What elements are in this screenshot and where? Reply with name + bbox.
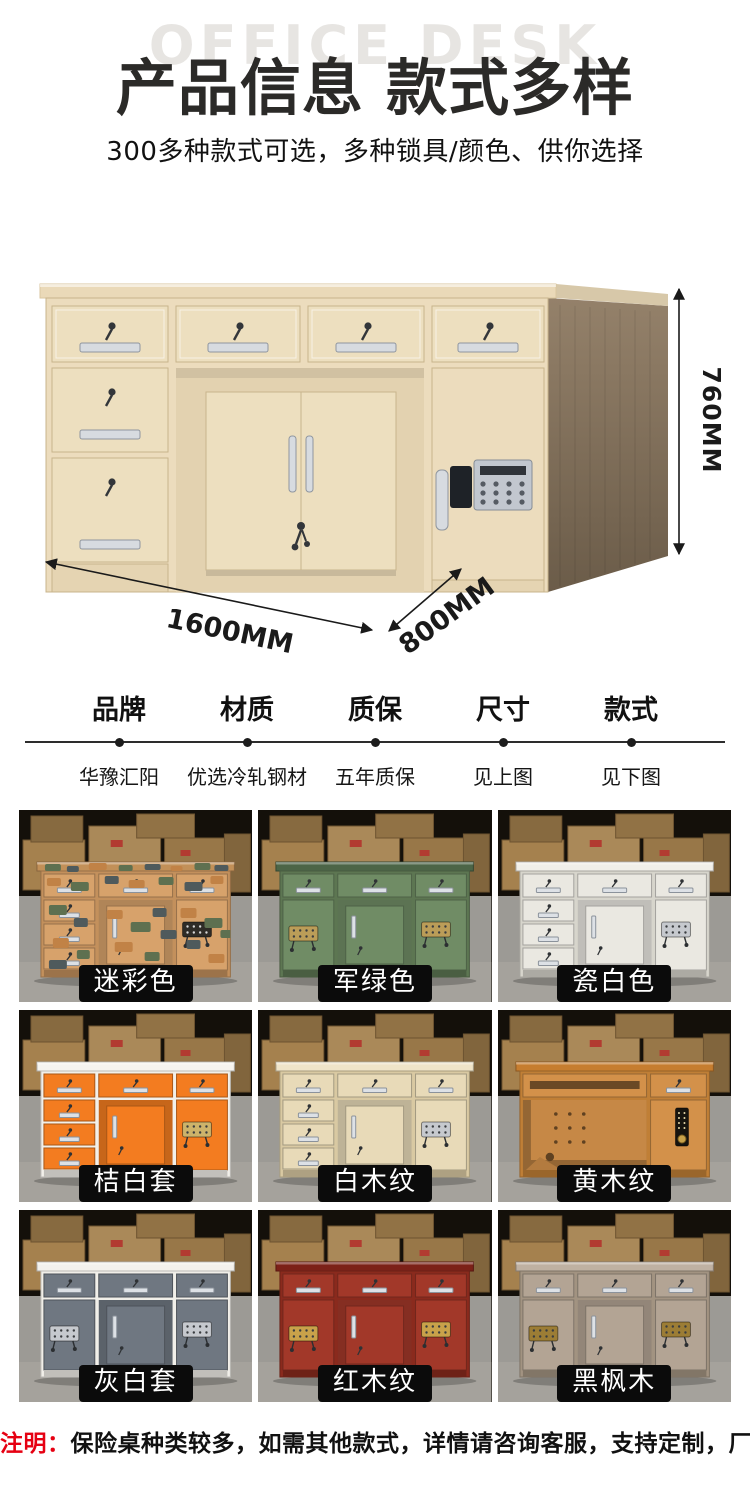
style-grid: 迷彩色 军绿色 瓷白色 桔白套 白木纹 黄木纹 灰白套 (19, 810, 731, 1402)
spec-value: 华豫汇阳 (79, 761, 159, 790)
spec-value: 见下图 (601, 761, 661, 790)
style-label: 桔白套 (79, 1165, 193, 1202)
style-label: 灰白套 (79, 1365, 193, 1402)
style-label: 瓷白色 (557, 965, 671, 1002)
spec-dot (115, 738, 124, 747)
page-title: 产品信息 款式多样 (0, 38, 750, 127)
spec-strip: 品牌 华豫汇阳 材质 优选冷轧钢材 质保 五年质保 尺寸 见上图 (0, 688, 750, 788)
footnote-prefix: 注明： (0, 1431, 71, 1457)
style-label: 军绿色 (318, 965, 432, 1002)
spec-dot (627, 738, 636, 747)
spec-label: 品牌 (92, 688, 146, 732)
spec-label: 材质 (220, 688, 274, 732)
style-cell: 黄木纹 (498, 1010, 731, 1202)
spec-value: 五年质保 (335, 761, 415, 790)
style-label: 迷彩色 (79, 965, 193, 1002)
style-cell: 军绿色 (258, 810, 491, 1002)
spec-item: 品牌 华豫汇阳 (55, 688, 183, 790)
dim-height-label: 760MM (697, 367, 726, 474)
spec-label: 款式 (604, 688, 658, 732)
style-label: 红木纹 (318, 1365, 432, 1402)
spec-row: 品牌 华豫汇阳 材质 优选冷轧钢材 质保 五年质保 尺寸 见上图 (55, 688, 695, 790)
style-label: 黄木纹 (557, 1165, 671, 1202)
product-hero: 760MM 1600MM 800MM (0, 240, 750, 670)
style-cell: 灰白套 (19, 1210, 252, 1402)
style-cell: 桔白套 (19, 1010, 252, 1202)
page-subtitle: 300多种款式可选，多种锁具/颜色、供你选择 (0, 131, 750, 168)
style-cell: 黑枫木 (498, 1210, 731, 1402)
spec-label: 尺寸 (476, 688, 530, 732)
spec-label: 质保 (348, 688, 402, 732)
footnote-text: 保险桌种类较多，如需其他款式，详情请咨询客服，支持定制，厂家直销 (71, 1431, 750, 1457)
hero-desk-illustration (40, 284, 668, 592)
spec-dot (371, 738, 380, 747)
style-label: 白木纹 (318, 1165, 432, 1202)
spec-item: 尺寸 见上图 (439, 688, 567, 790)
spec-item: 款式 见下图 (567, 688, 695, 790)
spec-item: 质保 五年质保 (311, 688, 439, 790)
spec-item: 材质 优选冷轧钢材 (183, 688, 311, 790)
style-cell: 白木纹 (258, 1010, 491, 1202)
footnote: 注明：保险桌种类较多，如需其他款式，详情请咨询客服，支持定制，厂家直销 (0, 1424, 750, 1458)
style-cell: 迷彩色 (19, 810, 252, 1002)
spec-value: 见上图 (473, 761, 533, 790)
spec-value: 优选冷轧钢材 (187, 761, 307, 790)
style-cell: 红木纹 (258, 1210, 491, 1402)
style-label: 黑枫木 (557, 1365, 671, 1402)
spec-dot (243, 738, 252, 747)
spec-dot (499, 738, 508, 747)
dim-width-label: 1600MM (164, 603, 297, 660)
style-cell: 瓷白色 (498, 810, 731, 1002)
hero-desk-photo: 760MM 1600MM 800MM (0, 240, 750, 670)
